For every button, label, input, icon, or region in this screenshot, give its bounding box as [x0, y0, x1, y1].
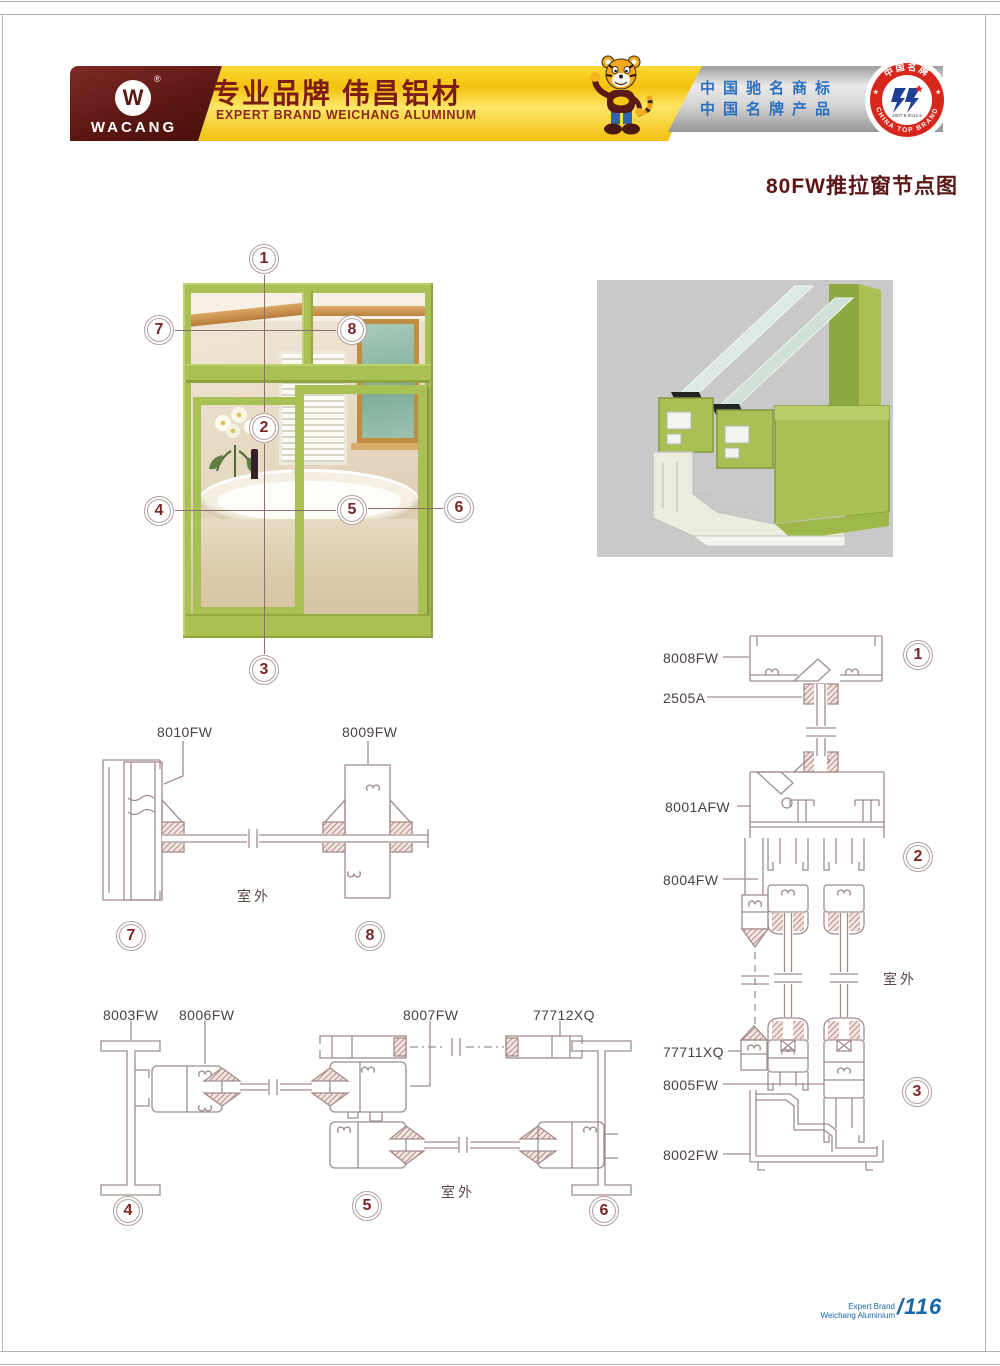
honor-text: 中国驰名商标 中国名牌产品 [700, 78, 838, 120]
right-rule [985, 14, 986, 1352]
part-label-8006FW: 8006FW [179, 1007, 234, 1023]
bottom-rule [0, 1351, 1000, 1365]
footer-brand: Expert Brand Weichang Aluminium [770, 1302, 895, 1320]
section-circle-2: 2 [903, 842, 933, 872]
seal-years: 2007.9-2012.9 [892, 113, 922, 118]
logo-monogram: W [123, 85, 144, 111]
top-rule [0, 1, 1000, 15]
registered-mark: ® [154, 74, 161, 84]
part-label-2505A: 2505A [663, 690, 705, 706]
profile-3d-render [597, 280, 893, 557]
footer-brand-line1: Expert Brand [770, 1302, 895, 1311]
section-circle-7: 7 [116, 921, 146, 951]
section-circle-5: 5 [352, 1191, 382, 1221]
logo-wordmark: WACANG [80, 119, 188, 136]
section-circle-3: 3 [902, 1077, 932, 1107]
section-circle-4: 4 [113, 1196, 143, 1226]
callout-2: 2 [249, 413, 279, 443]
bottom-track [186, 614, 430, 630]
callout-line-5-6 [368, 508, 443, 509]
callout-5: 5 [337, 495, 367, 525]
outdoor-label-78: 室外 [237, 886, 271, 906]
callout-7: 7 [144, 315, 174, 345]
tiger-mascot-icon [588, 54, 654, 140]
brand-slogan-en: EXPERT BRAND WEICHANG ALUMINUM [216, 108, 477, 122]
china-top-brand-seal: 中国名牌 ★ ★ CHINA TOP BRAND 2007.9-2012.9 [863, 56, 951, 144]
page-title: 80FW推拉窗节点图 [700, 170, 958, 200]
transom-bar [186, 364, 430, 383]
callout-1: 1 [249, 244, 279, 274]
part-label-8004FW: 8004FW [663, 872, 718, 888]
callout-4: 4 [144, 496, 174, 526]
part-label-77711XQ: 77711XQ [663, 1044, 724, 1060]
honor-line-1: 中国驰名商标 [700, 78, 838, 99]
sliding-sash-left [193, 397, 303, 615]
page-number: /116 [897, 1294, 942, 1320]
left-rule [2, 14, 3, 1352]
part-label-8007FW: 8007FW [403, 1007, 458, 1023]
logo-block: W ® WACANG [70, 66, 222, 141]
outdoor-label-456: 室外 [441, 1182, 475, 1202]
callout-line-7-8 [175, 330, 336, 331]
callout-line-4-5 [175, 510, 336, 511]
section-circle-1: 1 [903, 640, 933, 670]
part-label-8002FW: 8002FW [663, 1147, 718, 1163]
profile-3d-drawing [597, 280, 893, 557]
section-circle-6: 6 [589, 1196, 619, 1226]
section-drawing-1-2-3 [640, 628, 960, 1203]
callout-line-2-3 [264, 444, 265, 654]
wacang-logo-icon: W [115, 80, 151, 116]
callout-3: 3 [249, 655, 279, 685]
callout-6: 6 [444, 493, 474, 523]
part-label-8005FW: 8005FW [663, 1077, 718, 1093]
catalog-page: W ® WACANG 专业品牌 伟昌铝材 EXPERT BRAND WEICHA… [0, 0, 1000, 1366]
part-label-8009FW: 8009FW [342, 724, 397, 740]
part-label-8008FW: 8008FW [663, 650, 718, 666]
brand-slogan-cn: 专业品牌 伟昌铝材 [212, 72, 462, 112]
part-label-8003FW: 8003FW [103, 1007, 158, 1023]
honor-line-2: 中国名牌产品 [700, 99, 838, 120]
window-photo [183, 283, 433, 638]
outdoor-label-123: 室外 [883, 969, 917, 989]
part-label-8010FW: 8010FW [157, 724, 212, 740]
part-label-77712XQ: 77712XQ [533, 1007, 595, 1023]
callout-line-1-2 [264, 275, 265, 412]
part-label-8001AFW: 8001AFW [665, 799, 730, 815]
callout-8: 8 [337, 315, 367, 345]
footer-brand-line2: Weichang Aluminium [770, 1311, 895, 1320]
section-circle-8: 8 [355, 921, 385, 951]
